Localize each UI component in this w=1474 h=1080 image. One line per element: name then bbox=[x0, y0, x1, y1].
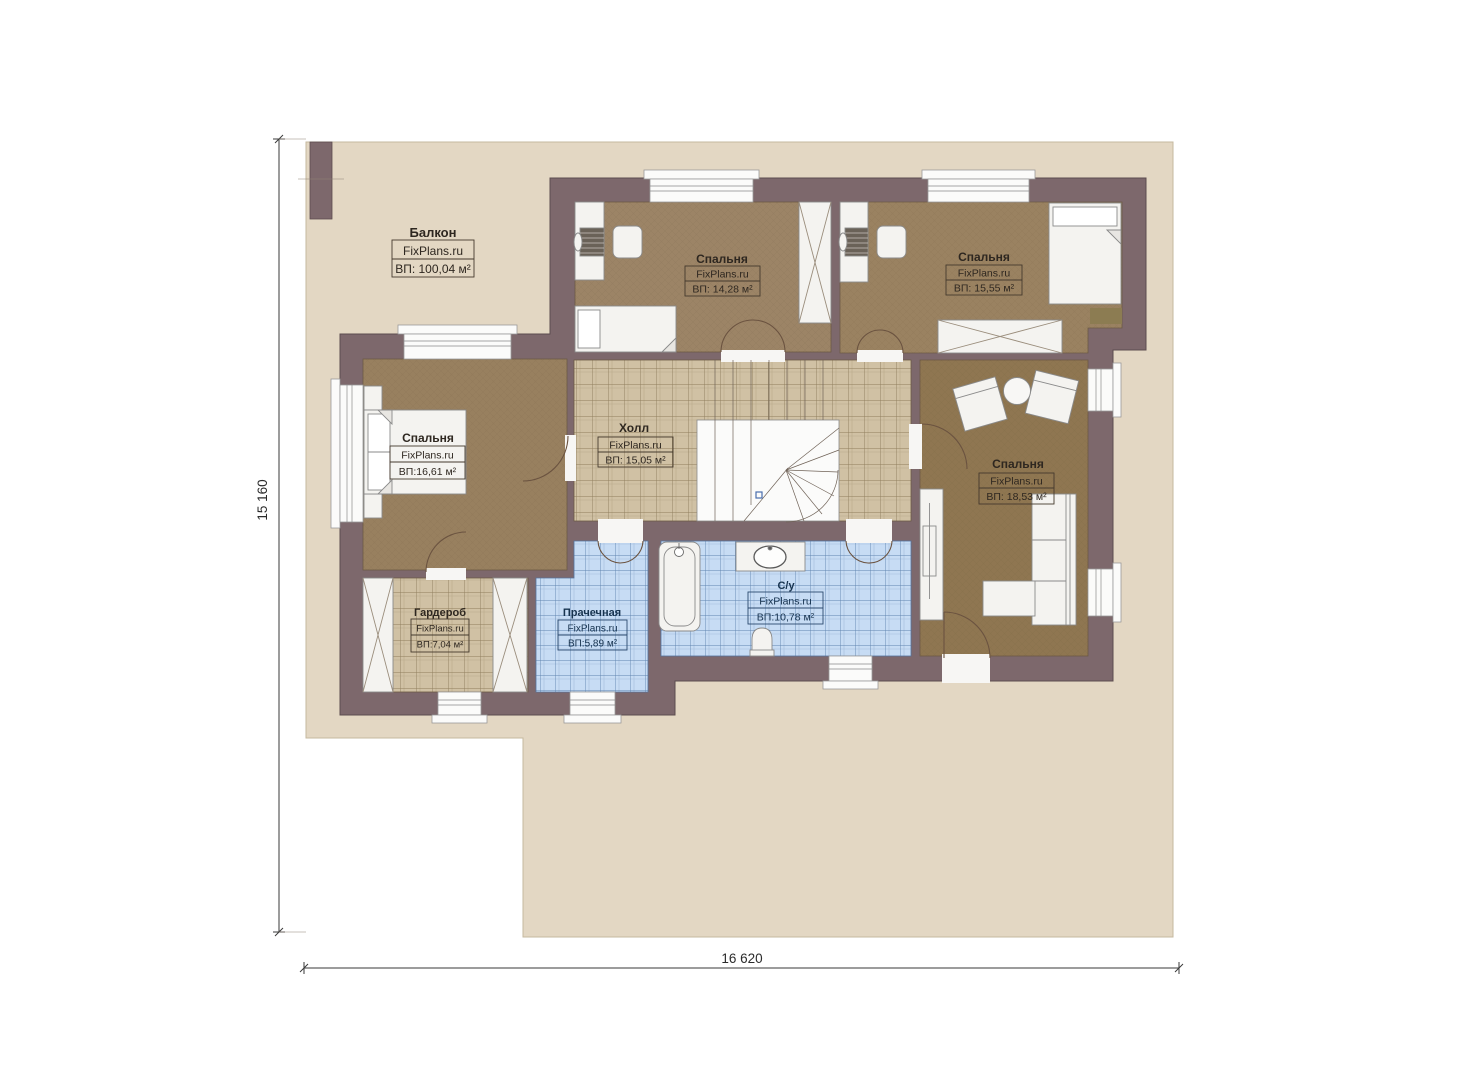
svg-text:Балкон: Балкон bbox=[410, 225, 457, 240]
svg-text:Спальня: Спальня bbox=[958, 250, 1010, 264]
svg-text:ВП:5,89 м²: ВП:5,89 м² bbox=[568, 639, 618, 650]
svg-text:Прачечная: Прачечная bbox=[563, 607, 621, 619]
svg-text:ВП:10,78 м²: ВП:10,78 м² bbox=[757, 612, 815, 624]
svg-text:FixPlans.ru: FixPlans.ru bbox=[567, 624, 617, 635]
svg-text:ВП: 18,53 м²: ВП: 18,53 м² bbox=[986, 491, 1047, 503]
svg-text:ВП: 15,55 м²: ВП: 15,55 м² bbox=[954, 283, 1015, 295]
svg-text:ВП:7,04 м²: ВП:7,04 м² bbox=[417, 640, 464, 651]
svg-text:Гардероб: Гардероб bbox=[414, 607, 466, 619]
svg-text:FixPlans.ru: FixPlans.ru bbox=[403, 244, 463, 258]
svg-text:С/у: С/у bbox=[777, 580, 795, 592]
svg-text:Спальня: Спальня bbox=[402, 431, 454, 445]
svg-text:Холл: Холл bbox=[619, 421, 649, 435]
svg-text:FixPlans.ru: FixPlans.ru bbox=[990, 476, 1043, 488]
svg-text:ВП: 100,04 м²: ВП: 100,04 м² bbox=[395, 262, 471, 276]
svg-text:ВП: 15,05 м²: ВП: 15,05 м² bbox=[605, 455, 666, 467]
svg-text:FixPlans.ru: FixPlans.ru bbox=[696, 269, 749, 281]
svg-text:FixPlans.ru: FixPlans.ru bbox=[416, 624, 464, 635]
svg-text:FixPlans.ru: FixPlans.ru bbox=[401, 450, 454, 462]
svg-text:FixPlans.ru: FixPlans.ru bbox=[759, 596, 812, 608]
svg-text:FixPlans.ru: FixPlans.ru bbox=[958, 268, 1011, 280]
svg-text:Спальня: Спальня bbox=[696, 252, 748, 266]
svg-text:FixPlans.ru: FixPlans.ru bbox=[609, 440, 662, 452]
svg-text:ВП: 14,28 м²: ВП: 14,28 м² bbox=[692, 284, 753, 296]
svg-text:ВП:16,61 м²: ВП:16,61 м² bbox=[399, 466, 457, 478]
svg-text:15 160: 15 160 bbox=[255, 479, 270, 520]
svg-text:Спальня: Спальня bbox=[992, 457, 1044, 471]
svg-text:16 620: 16 620 bbox=[721, 951, 762, 966]
